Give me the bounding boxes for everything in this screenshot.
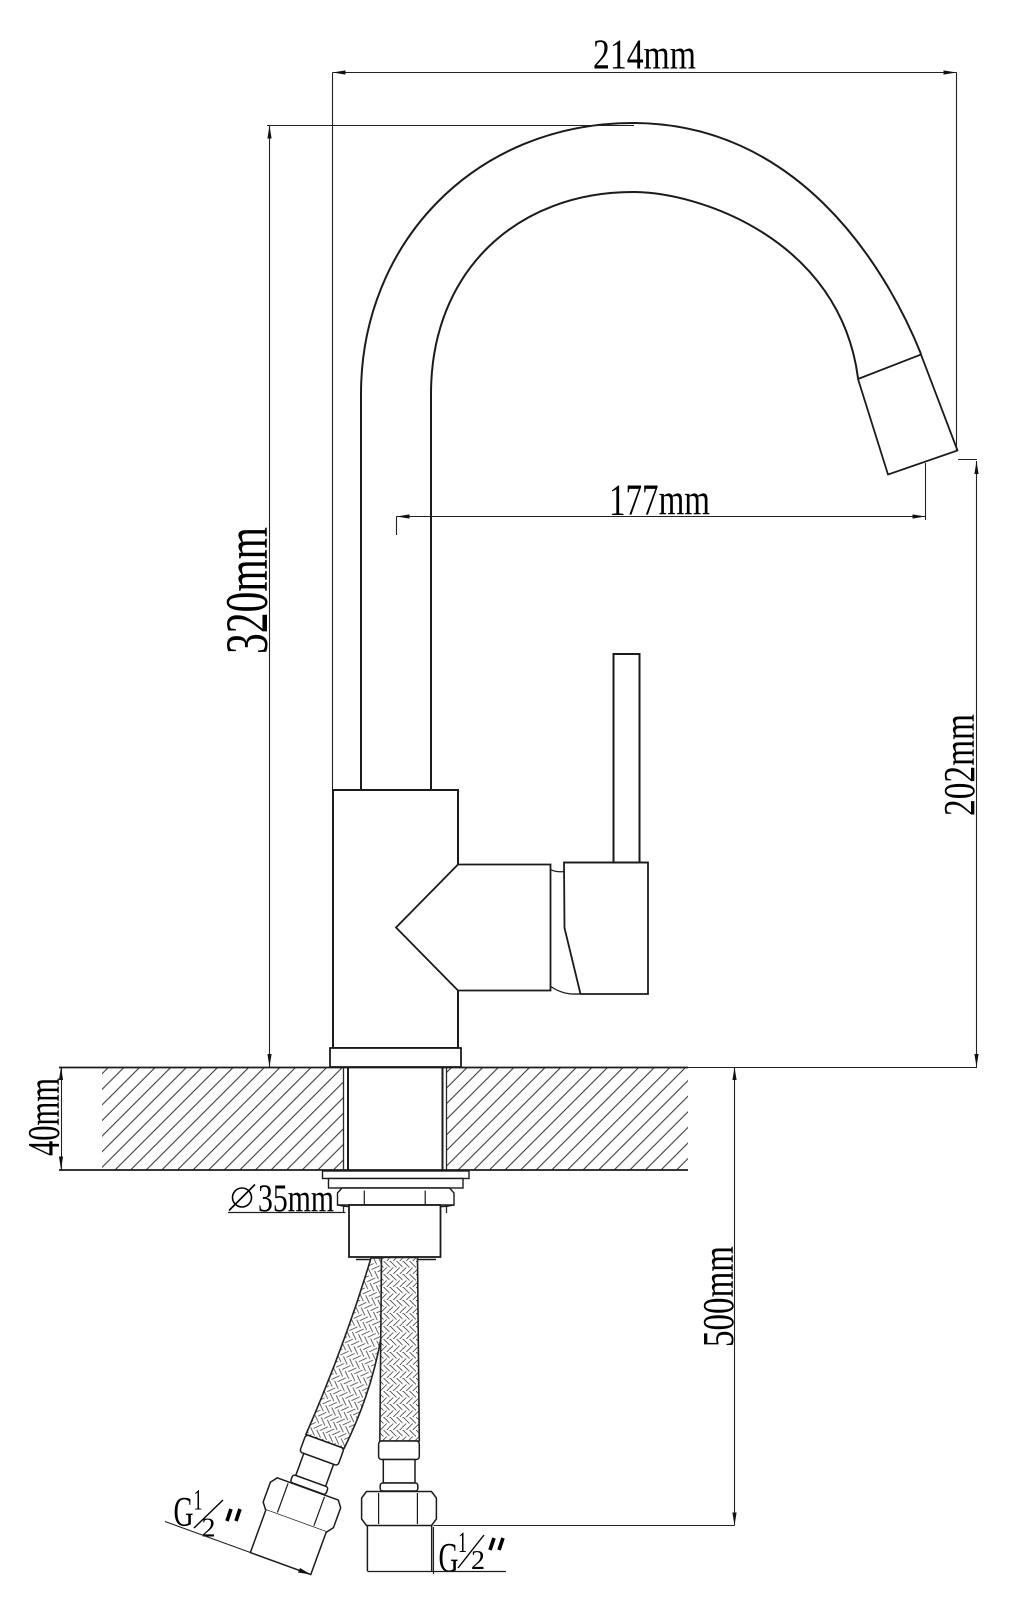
svg-text:40mm: 40mm bbox=[19, 1078, 69, 1156]
svg-text:35mm: 35mm bbox=[258, 1177, 334, 1220]
svg-text:1: 1 bbox=[458, 1526, 467, 1559]
svg-text:214mm: 214mm bbox=[593, 33, 696, 79]
svg-text:2: 2 bbox=[202, 1513, 216, 1543]
svg-text:202mm: 202mm bbox=[935, 714, 984, 816]
svg-text:177mm: 177mm bbox=[609, 476, 710, 525]
svg-text:G: G bbox=[174, 1490, 194, 1536]
svg-text:2: 2 bbox=[471, 1545, 485, 1575]
svg-text:320mm: 320mm bbox=[214, 527, 280, 654]
svg-text:G: G bbox=[439, 1536, 459, 1582]
svg-text:500mm: 500mm bbox=[694, 1246, 743, 1347]
